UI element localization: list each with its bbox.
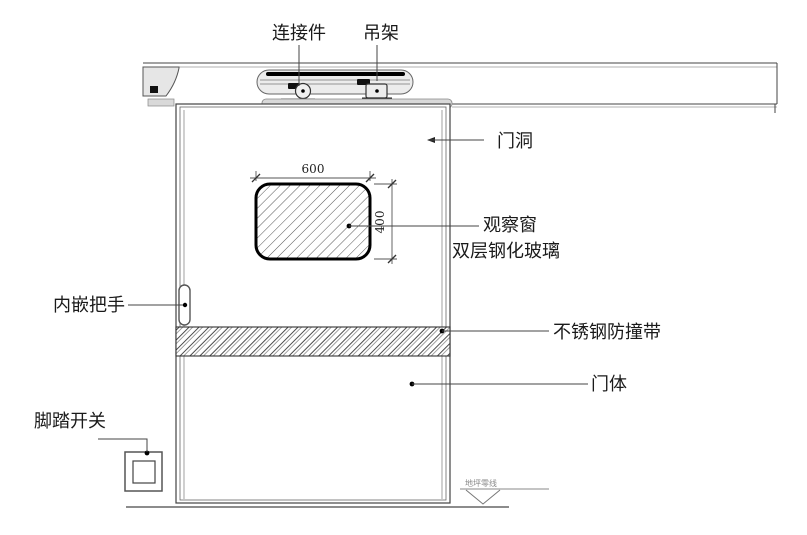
floor-level-label: 地坪零线	[465, 478, 497, 488]
door-opening-label: 门洞	[497, 131, 533, 151]
bumper-hatch	[176, 327, 450, 356]
foot-switch	[125, 451, 162, 491]
door-detail-diagram: 600 400 地坪零线 连接件 吊架	[0, 0, 807, 535]
door-body-label: 门体	[591, 374, 627, 394]
window-width-value: 600	[302, 162, 325, 176]
roller-hub-dot	[301, 89, 305, 93]
observation-window-label: 观察窗	[483, 215, 537, 235]
foot-switch-label: 脚踏开关	[34, 411, 106, 431]
track-bar	[257, 70, 413, 94]
level-triangle	[466, 490, 500, 504]
foot-switch-leader	[98, 439, 147, 452]
bracket-profile	[143, 67, 179, 96]
hanger-hub-dot	[375, 89, 379, 93]
hanger-label: 吊架	[363, 23, 399, 43]
window-height-value: 400	[373, 211, 387, 234]
bumper-band	[176, 327, 450, 356]
window-glass-hatch	[256, 184, 370, 259]
observation-window	[256, 184, 370, 259]
connector-label: 连接件	[272, 23, 326, 43]
handle-label: 内嵌把手	[53, 295, 125, 315]
header-step	[148, 99, 174, 106]
bumper-label: 不锈钢防撞带	[553, 322, 661, 342]
track-end-bracket	[143, 67, 179, 106]
foot-switch-inner	[133, 461, 155, 483]
drawing-canvas: 600 400 地坪零线 连接件 吊架	[0, 0, 807, 535]
glass-label: 双层钢化玻璃	[452, 241, 560, 261]
handle-leader-dot	[183, 303, 187, 307]
bracket-stop-block	[150, 86, 158, 93]
